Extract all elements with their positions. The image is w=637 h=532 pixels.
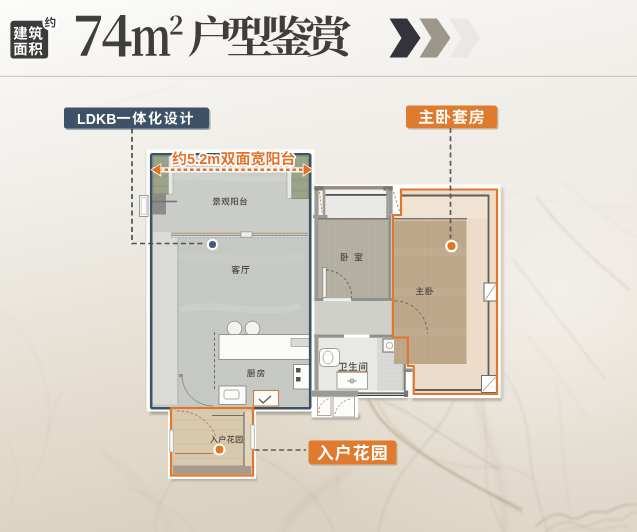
- svg-text:LDKB: LDKB: [77, 111, 117, 127]
- svg-text:5.2m: 5.2m: [187, 151, 220, 167]
